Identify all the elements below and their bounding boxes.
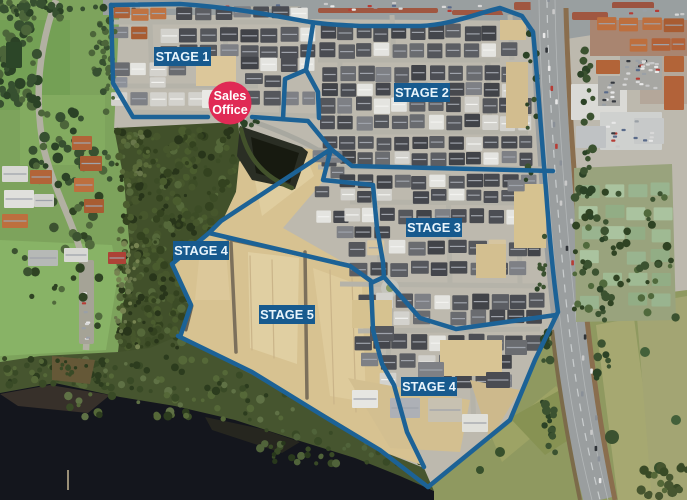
svg-text:STAGE 2: STAGE 2	[395, 85, 449, 100]
svg-text:STAGE 4: STAGE 4	[174, 243, 229, 258]
svg-text:STAGE 3: STAGE 3	[407, 220, 461, 235]
svg-text:Sales: Sales	[214, 89, 247, 103]
svg-text:Office: Office	[212, 103, 247, 117]
svg-text:STAGE 4: STAGE 4	[402, 379, 457, 394]
svg-text:STAGE 5: STAGE 5	[260, 307, 314, 322]
svg-text:STAGE 1: STAGE 1	[156, 49, 210, 64]
